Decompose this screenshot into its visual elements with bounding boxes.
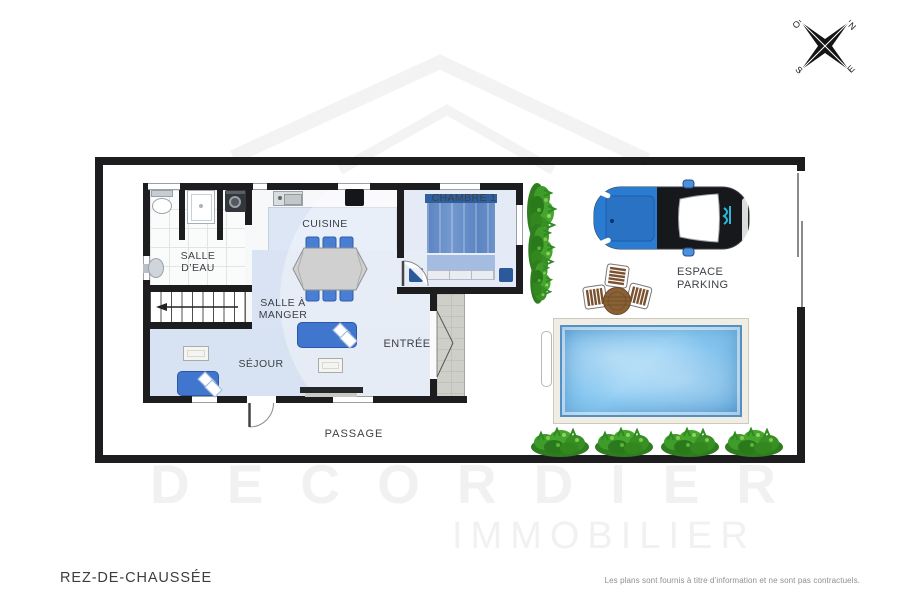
bush-icon: [595, 429, 653, 457]
compass-west-label: O: [790, 19, 802, 31]
car-roof: [679, 194, 720, 242]
area-label-line: PARKING: [677, 279, 729, 291]
floor-title: REZ-DE-CHAUSSÉE: [60, 570, 212, 586]
area-label-passage: PASSAGE: [314, 428, 394, 440]
room-label-salle-a-manger: SALLE À MANGER: [252, 297, 314, 321]
bush-icon: [725, 429, 783, 457]
disclaimer-text: Les plans sont fournis à titre d’informa…: [605, 576, 860, 585]
compass-east-label: E: [845, 63, 856, 74]
room-label-line: MANGER: [259, 309, 308, 321]
floor-plan-page: DECORDIER IMMOBILIER: [0, 0, 900, 600]
car-mirror: [683, 248, 694, 256]
compass-north-label: N: [846, 20, 858, 32]
room-label-sejour: SÉJOUR: [226, 358, 296, 370]
car-icon: [594, 180, 749, 256]
room-label-line: SALLE À: [260, 297, 305, 309]
room-label-entree: ENTRÉE: [372, 338, 442, 350]
room-label-cuisine: CUISINE: [285, 218, 365, 230]
bush-icon: [661, 429, 719, 457]
terrace-door: [250, 403, 274, 427]
area-label-line: ESPACE: [677, 266, 723, 278]
bedroom-door: [403, 261, 428, 286]
terrace-table-set: [583, 264, 653, 315]
dining-table: [293, 248, 367, 290]
bush-icon: [531, 429, 589, 457]
area-label-parking: ESPACE PARKING: [677, 266, 747, 292]
room-label-line: D’EAU: [181, 262, 215, 274]
plant-icon: [530, 260, 551, 304]
car-mirror: [683, 180, 694, 188]
room-label-line: SALLE: [181, 250, 216, 262]
compass-south-label: S: [793, 64, 804, 75]
dining-set: [293, 237, 367, 301]
plan-overlay: O N S E: [0, 0, 900, 600]
room-label-chambre: CHAMBRE 1: [414, 192, 514, 204]
stairs-direction-arrow: [156, 303, 238, 311]
compass-icon: O N S E: [790, 19, 858, 76]
room-label-salle-deau: SALLE D’EAU: [163, 250, 233, 274]
terrace-chair: [605, 264, 630, 289]
